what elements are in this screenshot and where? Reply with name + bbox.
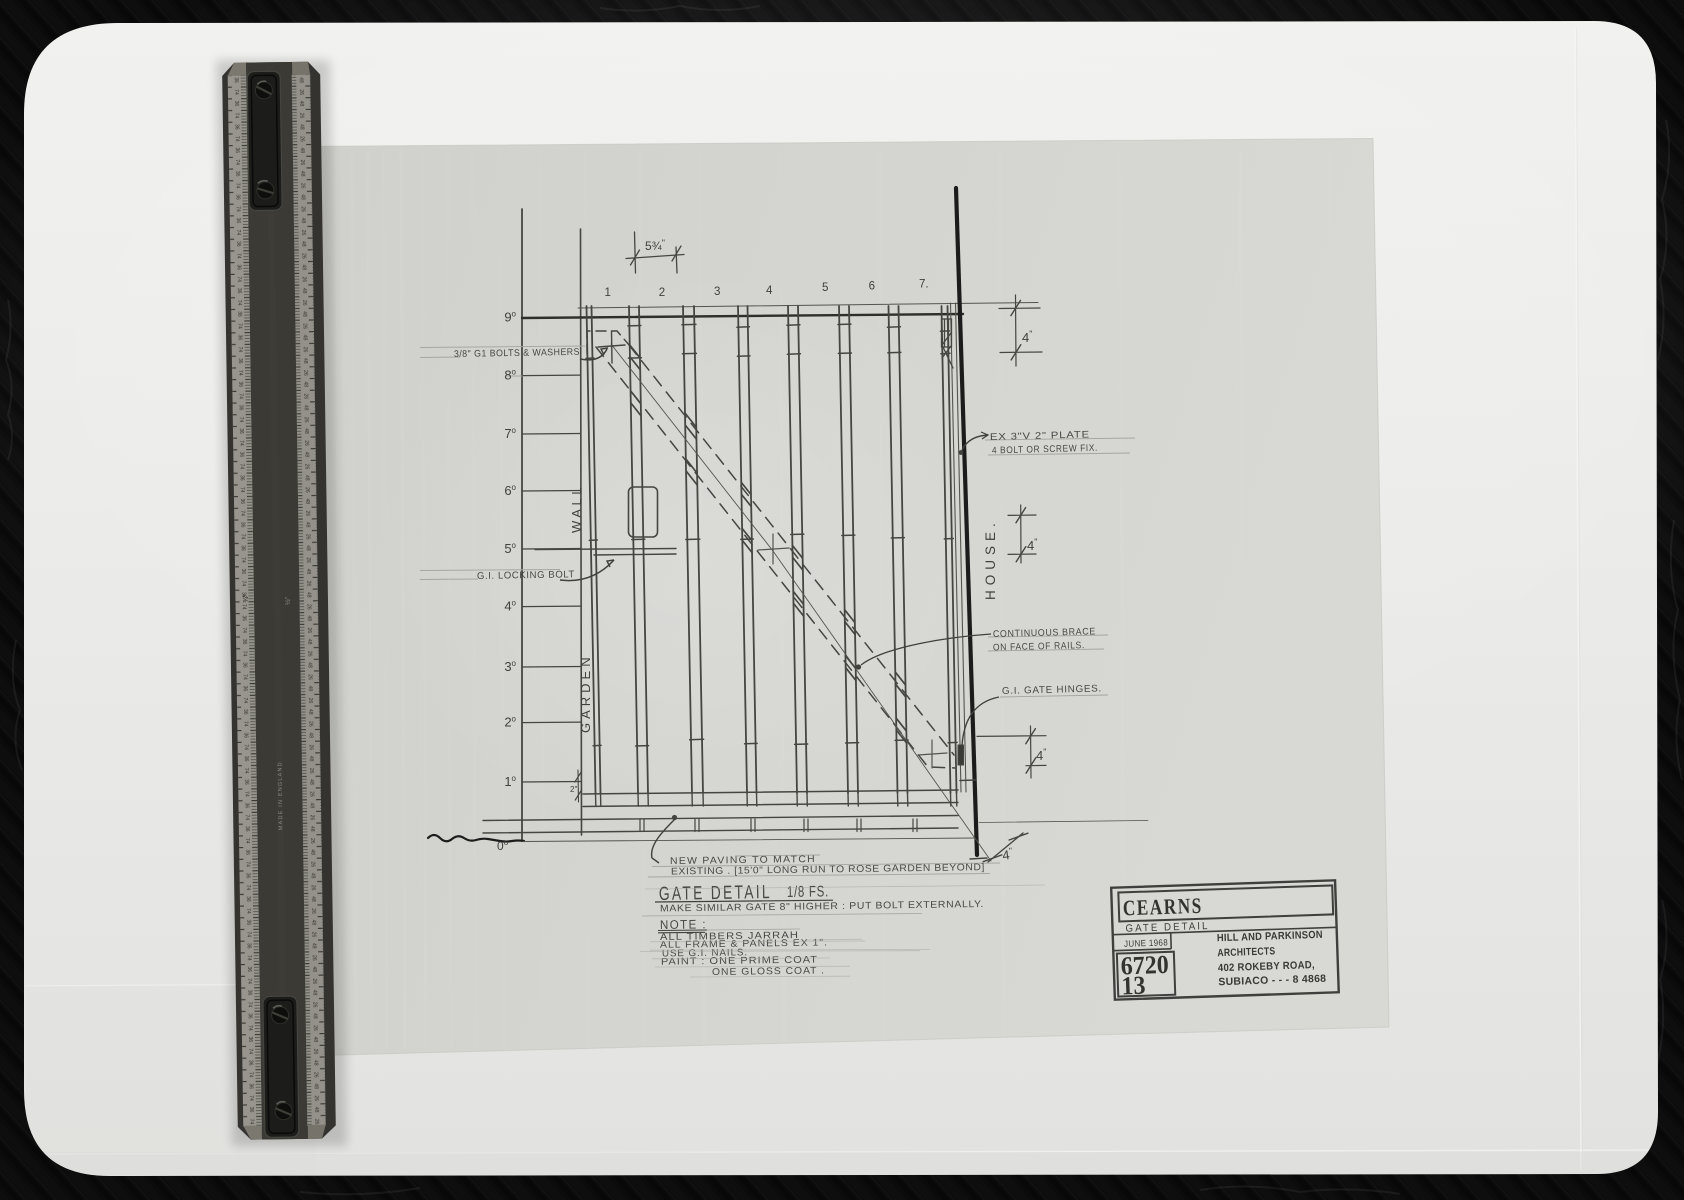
svg-text:5: 5 — [822, 282, 828, 294]
svg-text:MADE IN ENGLAND: MADE IN ENGLAND — [277, 761, 284, 830]
svg-text:¾": ¾" — [243, 594, 250, 603]
svg-text:HOUSE.: HOUSE. — [983, 518, 998, 600]
svg-text:4: 4 — [766, 285, 773, 297]
svg-text:GARDEN: GARDEN — [578, 653, 593, 733]
svg-text:2: 2 — [659, 287, 665, 299]
svg-text:JUNE 1968: JUNE 1968 — [1124, 937, 1168, 948]
svg-text:3: 3 — [714, 286, 720, 298]
svg-text:7.: 7. — [919, 279, 929, 291]
svg-text:CEARNS: CEARNS — [1122, 893, 1203, 921]
svg-text:6: 6 — [869, 281, 875, 293]
svg-text:1: 1 — [605, 287, 611, 299]
svg-text:ARCHITECTS: ARCHITECTS — [1217, 945, 1275, 959]
svg-text:½": ½" — [284, 596, 292, 605]
svg-text:13: 13 — [1121, 971, 1146, 1001]
svg-text:2": 2" — [570, 785, 577, 794]
svg-text:3/8" G1 BOLTS & WASHERS: 3/8" G1 BOLTS & WASHERS — [454, 347, 580, 360]
svg-text:WALL: WALL — [569, 484, 584, 533]
svg-text:1/8 FS.: 1/8 FS. — [787, 883, 829, 901]
